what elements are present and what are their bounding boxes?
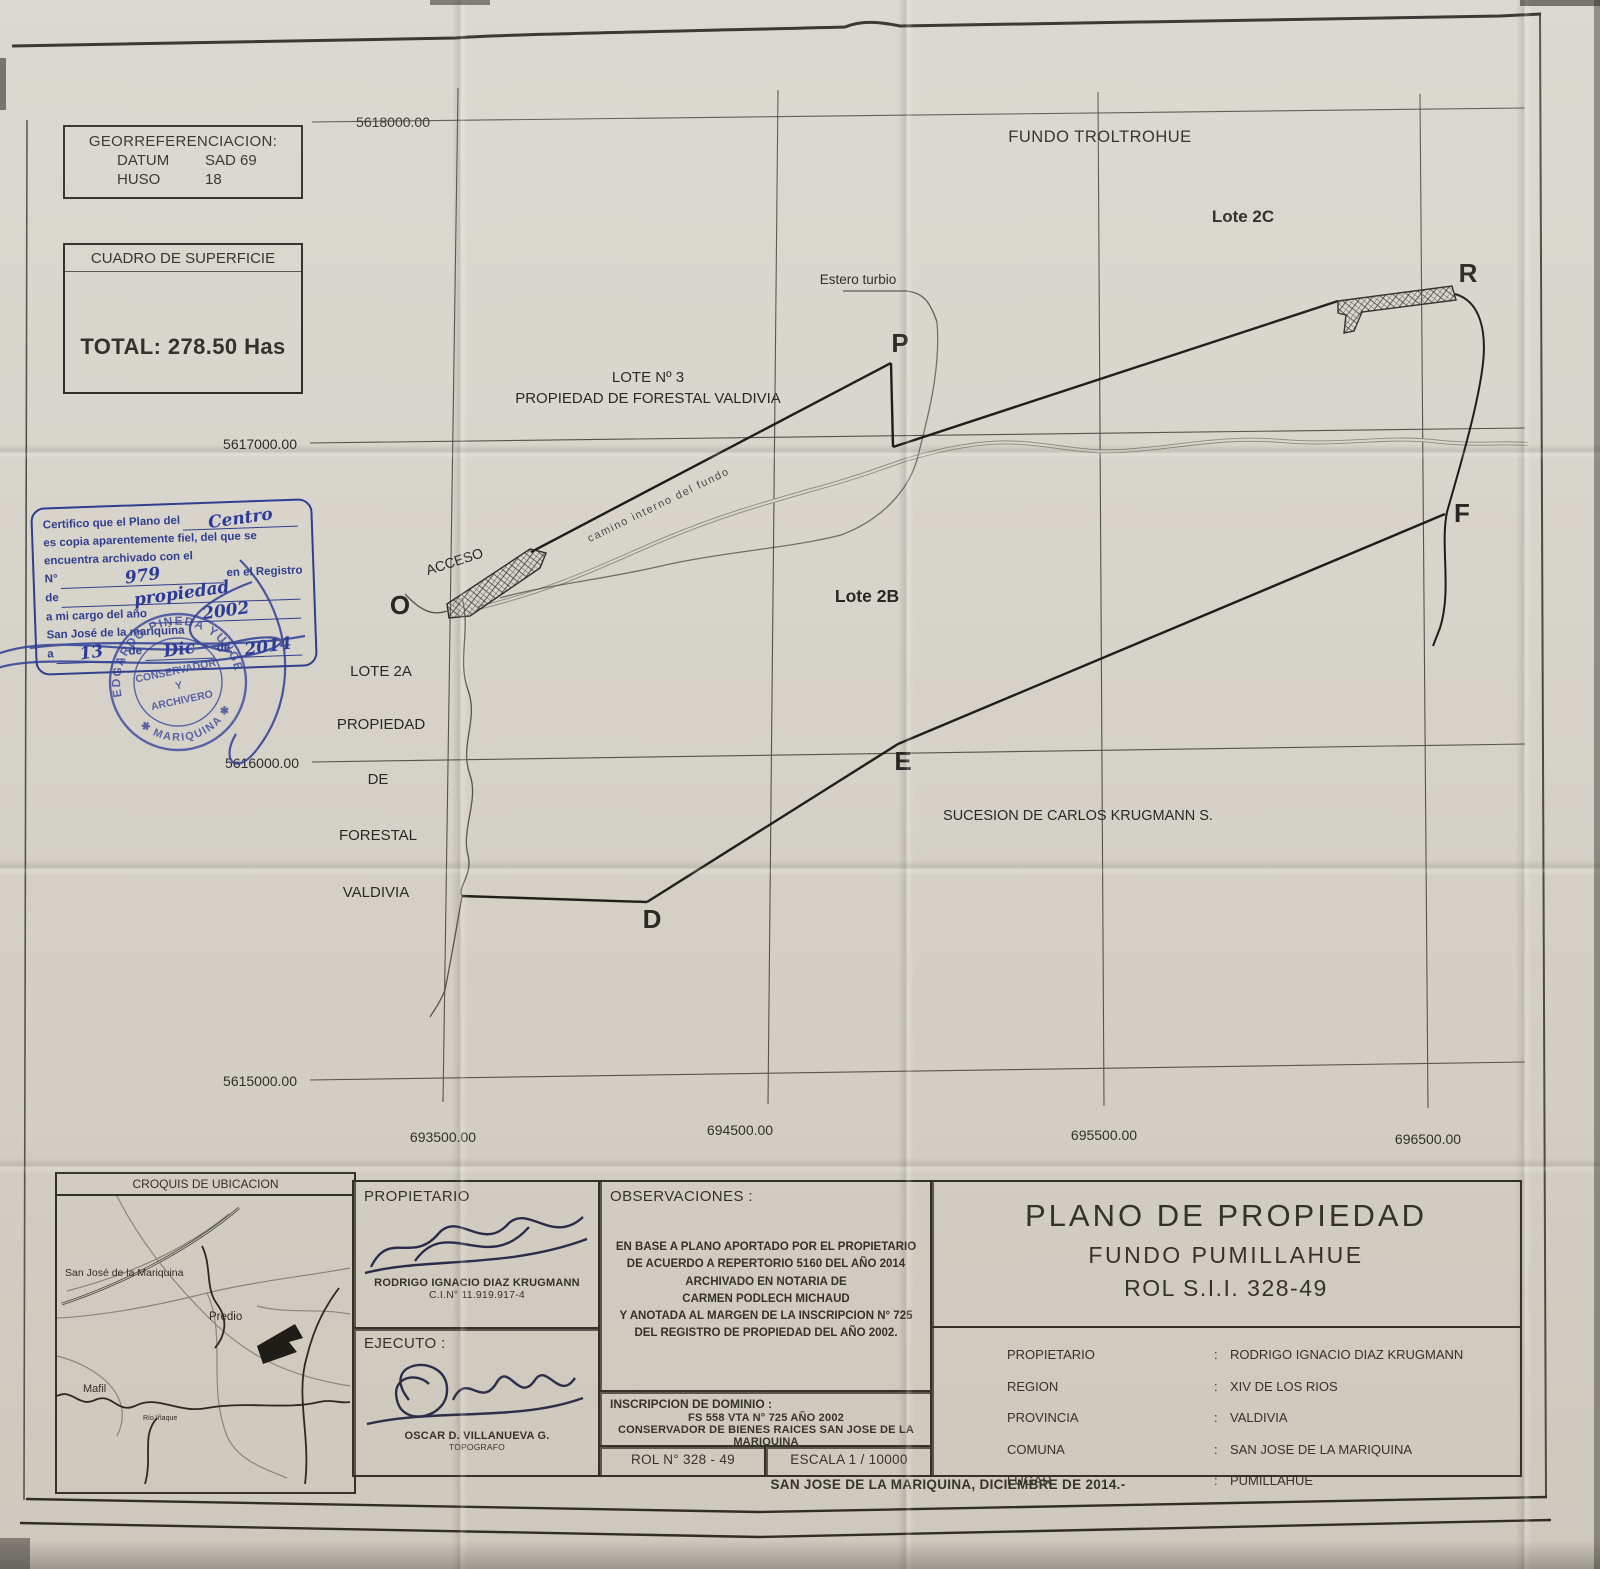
info-row-comuna: COMUNA : SAN JOSE DE LA MARIQUINA — [932, 1433, 1520, 1465]
ejecuto-label: EJECUTO : — [364, 1335, 600, 1352]
seal-center-line2: Y — [174, 679, 183, 692]
obs-line: Y ANOTADA AL MARGEN DE LA INSCRIPCION N°… — [600, 1308, 932, 1325]
inscripcion-dominio-cell: INSCRIPCION DE DOMINIO : FS 558 VTA N° 7… — [598, 1390, 934, 1449]
owner-ci: C.I.N° 11.919.917-4 — [354, 1289, 600, 1301]
vertex-F: F — [1454, 498, 1470, 528]
info-value: VALDIVIA — [1230, 1410, 1288, 1425]
info-value: SAN JOSE DE LA MARIQUINA — [1230, 1442, 1412, 1457]
grid-x-693500: 693500.00 — [410, 1129, 476, 1145]
obs-line: CARMEN PODLECH MICHAUD — [600, 1291, 932, 1308]
label-lote-2b: Lote 2B — [835, 586, 899, 606]
owner-signature — [357, 1205, 597, 1277]
map-labels: FUNDO TROLTROHUE Lote 2C Estero turbio L… — [337, 128, 1478, 934]
info-label: PROVINCIA — [1007, 1410, 1079, 1425]
label-acceso: ACCESO — [424, 544, 485, 578]
info-label: COMUNA — [1007, 1442, 1065, 1457]
info-colon: : — [1214, 1442, 1218, 1457]
label-lote2a-4: FORESTAL — [339, 827, 417, 844]
grid-x-695500: 695500.00 — [1071, 1127, 1137, 1143]
propietario-label: PROPIETARIO — [364, 1188, 600, 1205]
info-colon: : — [1214, 1410, 1218, 1425]
croquis-predio-arrow — [257, 1324, 303, 1364]
huso-value: 18 — [205, 171, 222, 188]
croquis-highway — [62, 1208, 239, 1304]
datum-label: DATUM — [117, 152, 205, 169]
date-line: SAN JOSE DE LA MARIQUINA, DICIEMBRE DE 2… — [598, 1473, 1298, 1492]
georef-datum-row: DATUM SAD 69 — [65, 150, 301, 169]
west-stream — [430, 598, 473, 1017]
observaciones-label: OBSERVACIONES : — [610, 1188, 932, 1205]
boundary-F-E — [898, 514, 1445, 744]
grid-x-694500: 694500.00 — [707, 1122, 773, 1138]
seal-center-line3: ARCHIVERO — [150, 688, 214, 713]
label-lote3-line1: LOTE Nº 3 — [612, 369, 684, 386]
info-label: PROPIETARIO — [1007, 1347, 1095, 1362]
obs-line: EN BASE A PLANO APORTADO POR EL PROPIETA… — [600, 1239, 932, 1256]
plan-title-line2: FUNDO PUMILLAHUE — [932, 1242, 1520, 1269]
croquis-rivers — [57, 1246, 350, 1484]
label-estero-turbio: Estero turbio — [820, 272, 897, 287]
georef-huso-row: HUSO 18 — [65, 169, 301, 188]
label-camino-interno: camino interno del fundo — [586, 466, 732, 545]
vertex-D: D — [643, 904, 662, 934]
label-lote3-line2: PROPIEDAD DE FORESTAL VALDIVIA — [515, 390, 781, 407]
estero-turbio-leader — [843, 291, 937, 322]
camino-interno-road — [478, 440, 1528, 608]
grid-x-696500: 696500.00 — [1395, 1131, 1461, 1147]
croquis-title: CROQUIS DE UBICACION — [57, 1174, 354, 1196]
superficie-total: TOTAL: 278.50 Has — [65, 334, 301, 360]
owner-name: RODRIGO IGNACIO DIAZ KRUGMANN — [354, 1277, 600, 1289]
propietario-cell: PROPIETARIO RODRIGO IGNACIO DIAZ KRUGMAN… — [352, 1180, 602, 1331]
plan-title-line1: PLANO DE PROPIEDAD — [932, 1198, 1520, 1234]
huso-label: HUSO — [117, 171, 205, 188]
info-row-region: REGION : XIV DE LOS RIOS — [932, 1370, 1520, 1402]
ejecuto-cell: EJECUTO : OSCAR D. VILLANUEVA G. TOPOGRA… — [352, 1327, 602, 1477]
grid-y-5615000: 5615000.00 — [223, 1073, 297, 1089]
datum-value: SAD 69 — [205, 152, 257, 169]
seal-and-signature-overlay: EDGARDO PINEDA YUNGE ✱ MARIQUINA ✱ CONSE… — [0, 470, 420, 810]
inscripcion-label: INSCRIPCION DE DOMINIO : — [610, 1397, 932, 1411]
info-row-provincia: PROVINCIA : VALDIVIA — [932, 1401, 1520, 1433]
label-sucesion-krugmann: SUCESION DE CARLOS KRUGMANN S. — [943, 808, 1213, 824]
conservator-round-seal: EDGARDO PINEDA YUNGE ✱ MARIQUINA ✱ CONSE… — [96, 601, 260, 763]
croquis-ubicacion-box: CROQUIS DE UBICACION Sa — [55, 1172, 356, 1494]
surveyor-signature — [357, 1352, 597, 1430]
boundary-P-drop — [891, 363, 893, 447]
plan-title-block: PLANO DE PROPIEDAD FUNDO PUMILLAHUE ROL … — [930, 1180, 1522, 1477]
grid-y-5618000: 5618000.00 — [356, 114, 430, 130]
obs-line: ARCHIVADO EN NOTARIA DE — [600, 1274, 932, 1291]
superficie-title: CUADRO DE SUPERFICIE — [65, 245, 301, 272]
vertex-E: E — [894, 746, 911, 776]
inscripcion-line1: FS 558 VTA N° 725 AÑO 2002 — [600, 1412, 932, 1424]
info-colon: : — [1214, 1347, 1218, 1362]
r-hatched-strip — [1338, 286, 1456, 333]
croquis-town-label: San José de la Mariquina — [65, 1267, 184, 1279]
label-lote-2c: Lote 2C — [1212, 207, 1274, 226]
label-lote2a-5: VALDIVIA — [343, 884, 409, 901]
info-value: XIV DE LOS RIOS — [1230, 1379, 1338, 1394]
croquis-mafil-label: Mafil — [83, 1383, 106, 1395]
escala-value: ESCALA 1 / 10000 — [766, 1447, 932, 1467]
plan-info-table: PROPIETARIO : RODRIGO IGNACIO DIAZ KRUGM… — [932, 1328, 1520, 1496]
croquis-labels: San José de la Mariquina Predio Mafil Rí… — [65, 1267, 242, 1422]
estero-turbio-stream — [500, 322, 938, 598]
vertex-P: P — [891, 328, 908, 358]
info-row-propietario: PROPIETARIO : RODRIGO IGNACIO DIAZ KRUGM… — [932, 1338, 1520, 1370]
observaciones-body: EN BASE A PLANO APORTADO POR EL PROPIETA… — [600, 1239, 932, 1343]
plan-title-area: PLANO DE PROPIEDAD FUNDO PUMILLAHUE ROL … — [932, 1198, 1520, 1328]
obs-line: DEL REGISTRO DE PROPIEDAD DEL AÑO 2002. — [600, 1325, 932, 1342]
cuadro-superficie-box: CUADRO DE SUPERFICIE TOTAL: 278.50 Has — [63, 243, 303, 394]
surveyor-role: TOPOGRAFO — [354, 1442, 600, 1452]
grid-y-5617000: 5617000.00 — [223, 436, 297, 452]
scanned-property-plan-sheet: 5618000.00 5617000.00 5616000.00 5615000… — [0, 0, 1600, 1569]
croquis-rio-label: Río Iñaque — [143, 1415, 177, 1422]
georeferenciacion-box: GEORREFERENCIACION: DATUM SAD 69 HUSO 18 — [63, 125, 303, 199]
croquis-mini-map: San José de la Mariquina Predio Mafil Rí… — [57, 1196, 350, 1484]
surveyor-name: OSCAR D. VILLANUEVA G. — [354, 1430, 600, 1442]
info-colon: : — [1214, 1379, 1218, 1394]
rol-value: ROL N° 328 - 49 — [600, 1447, 766, 1467]
boundary-R-F-curve — [1433, 294, 1484, 646]
vertex-R: R — [1459, 258, 1478, 288]
boundary-E-D — [647, 744, 898, 902]
info-value: RODRIGO IGNACIO DIAZ KRUGMANN — [1230, 1347, 1463, 1362]
info-label: REGION — [1007, 1379, 1058, 1394]
obs-line: DE ACUERDO A REPERTORIO 5160 DEL AÑO 201… — [600, 1256, 932, 1273]
plan-title-line3: ROL S.I.I. 328-49 — [932, 1275, 1520, 1302]
label-fundo-troltrohue: FUNDO TROLTROHUE — [1008, 128, 1191, 146]
boundary-D-west — [462, 896, 647, 902]
boundary-P-R — [893, 301, 1338, 447]
croquis-predio-label: Predio — [209, 1311, 242, 1323]
observaciones-cell: OBSERVACIONES : EN BASE A PLANO APORTADO… — [598, 1180, 934, 1394]
georef-title: GEORREFERENCIACION: — [65, 127, 301, 150]
